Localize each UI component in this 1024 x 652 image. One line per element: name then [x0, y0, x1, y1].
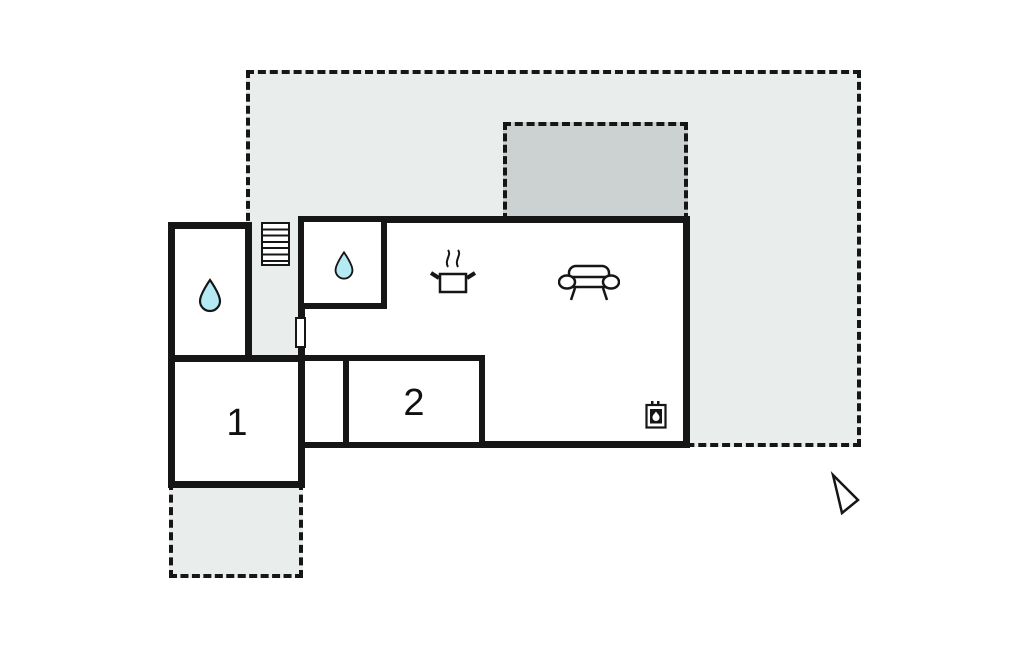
wood-stove-icon [645, 401, 667, 429]
stairs-icon [261, 222, 290, 266]
sofa-icon [558, 264, 620, 302]
canopy-area [503, 122, 688, 221]
water-drop-icon [333, 249, 355, 282]
room-1-label: 1 [170, 403, 304, 443]
floor-plan: 1 2 [0, 0, 1024, 652]
room-2-label: 2 [349, 383, 479, 423]
north-arrow-icon [828, 471, 862, 517]
cooking-pot-icon [430, 247, 476, 295]
water-drop-icon [197, 278, 223, 313]
door-opening-marker [295, 317, 306, 348]
terrace-area-south [169, 482, 303, 578]
